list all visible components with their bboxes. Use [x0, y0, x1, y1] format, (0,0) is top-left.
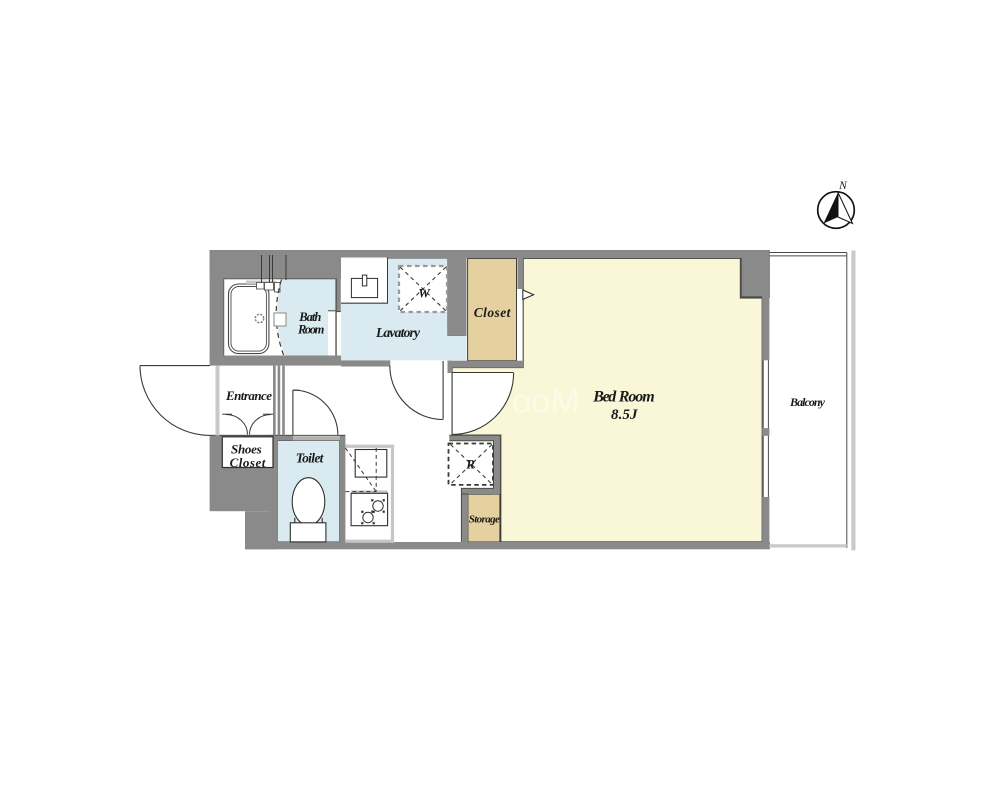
svg-text:Entrance: Entrance	[225, 388, 272, 403]
svg-text:Bed: Bed	[592, 389, 617, 406]
svg-text:Room: Room	[297, 323, 325, 337]
svg-text:Closet: Closet	[230, 455, 266, 470]
svg-text:Closet: Closet	[474, 305, 512, 320]
svg-text:R: R	[465, 458, 474, 472]
svg-text:8.5J: 8.5J	[611, 407, 638, 423]
svg-text:Room: Room	[618, 389, 655, 406]
svg-text:ooM: ooM	[512, 383, 580, 420]
svg-text:Storage: Storage	[469, 513, 500, 525]
svg-text:Toilet: Toilet	[296, 451, 325, 466]
svg-text:N: N	[838, 180, 848, 192]
svg-text:W: W	[418, 286, 431, 301]
svg-text:Lavatory: Lavatory	[375, 325, 421, 340]
svg-text:Balcony: Balcony	[789, 395, 826, 409]
